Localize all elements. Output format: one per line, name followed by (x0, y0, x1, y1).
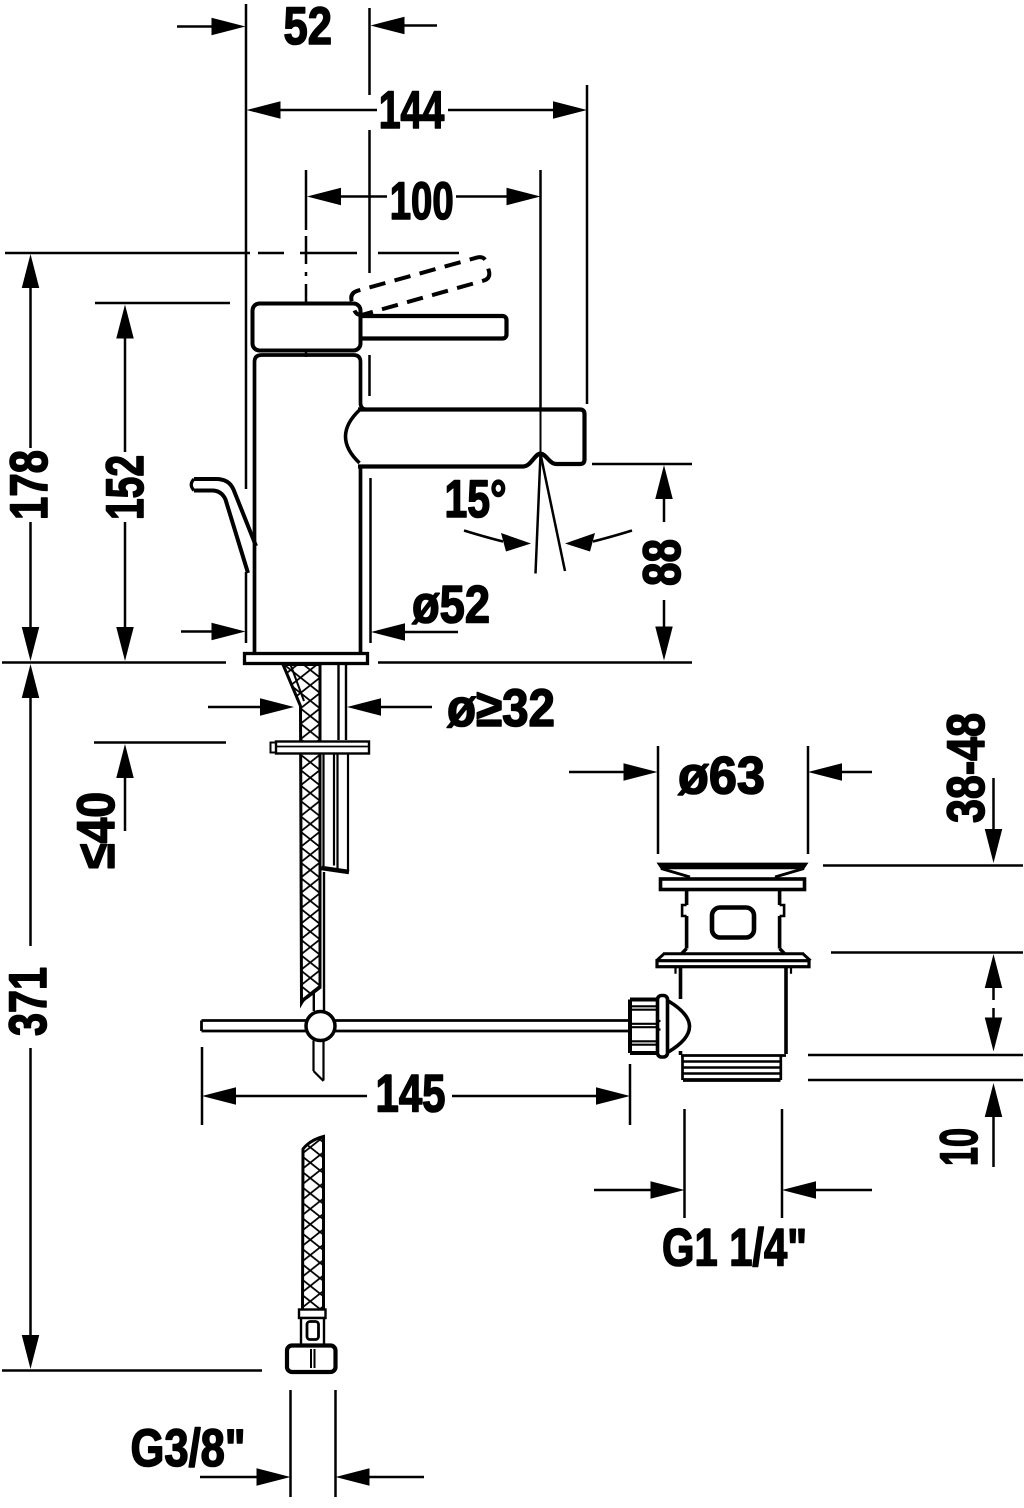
svg-text:ø52: ø52 (412, 576, 490, 635)
svg-text:88: 88 (633, 539, 692, 586)
svg-text:145: 145 (376, 1065, 446, 1124)
svg-text:15°: 15° (445, 470, 507, 529)
svg-text:ø≥32: ø≥32 (447, 679, 555, 738)
svg-text:371: 371 (0, 967, 58, 1036)
svg-text:38-48: 38-48 (937, 713, 996, 823)
svg-text:≤40: ≤40 (67, 792, 126, 869)
svg-text:144: 144 (379, 81, 445, 140)
svg-text:10: 10 (930, 1128, 989, 1166)
svg-text:ø63: ø63 (678, 747, 765, 806)
svg-text:178: 178 (0, 450, 59, 520)
svg-text:152: 152 (96, 455, 155, 520)
svg-text:G1 1/4": G1 1/4" (662, 1219, 807, 1278)
svg-text:52: 52 (284, 0, 333, 56)
svg-text:100: 100 (390, 172, 454, 231)
svg-text:G3/8": G3/8" (131, 1419, 246, 1478)
